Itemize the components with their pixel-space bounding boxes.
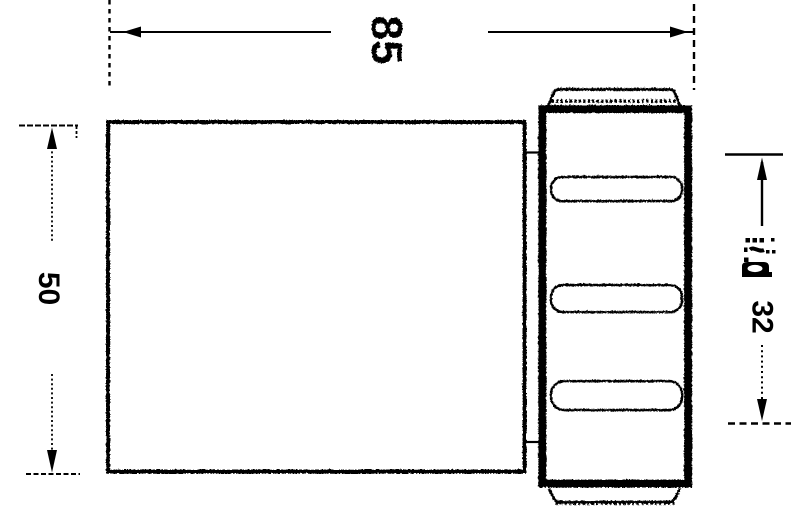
svg-text:50: 50 bbox=[32, 272, 65, 305]
svg-text:85: 85 bbox=[363, 15, 412, 64]
svg-text:32: 32 bbox=[746, 300, 779, 333]
